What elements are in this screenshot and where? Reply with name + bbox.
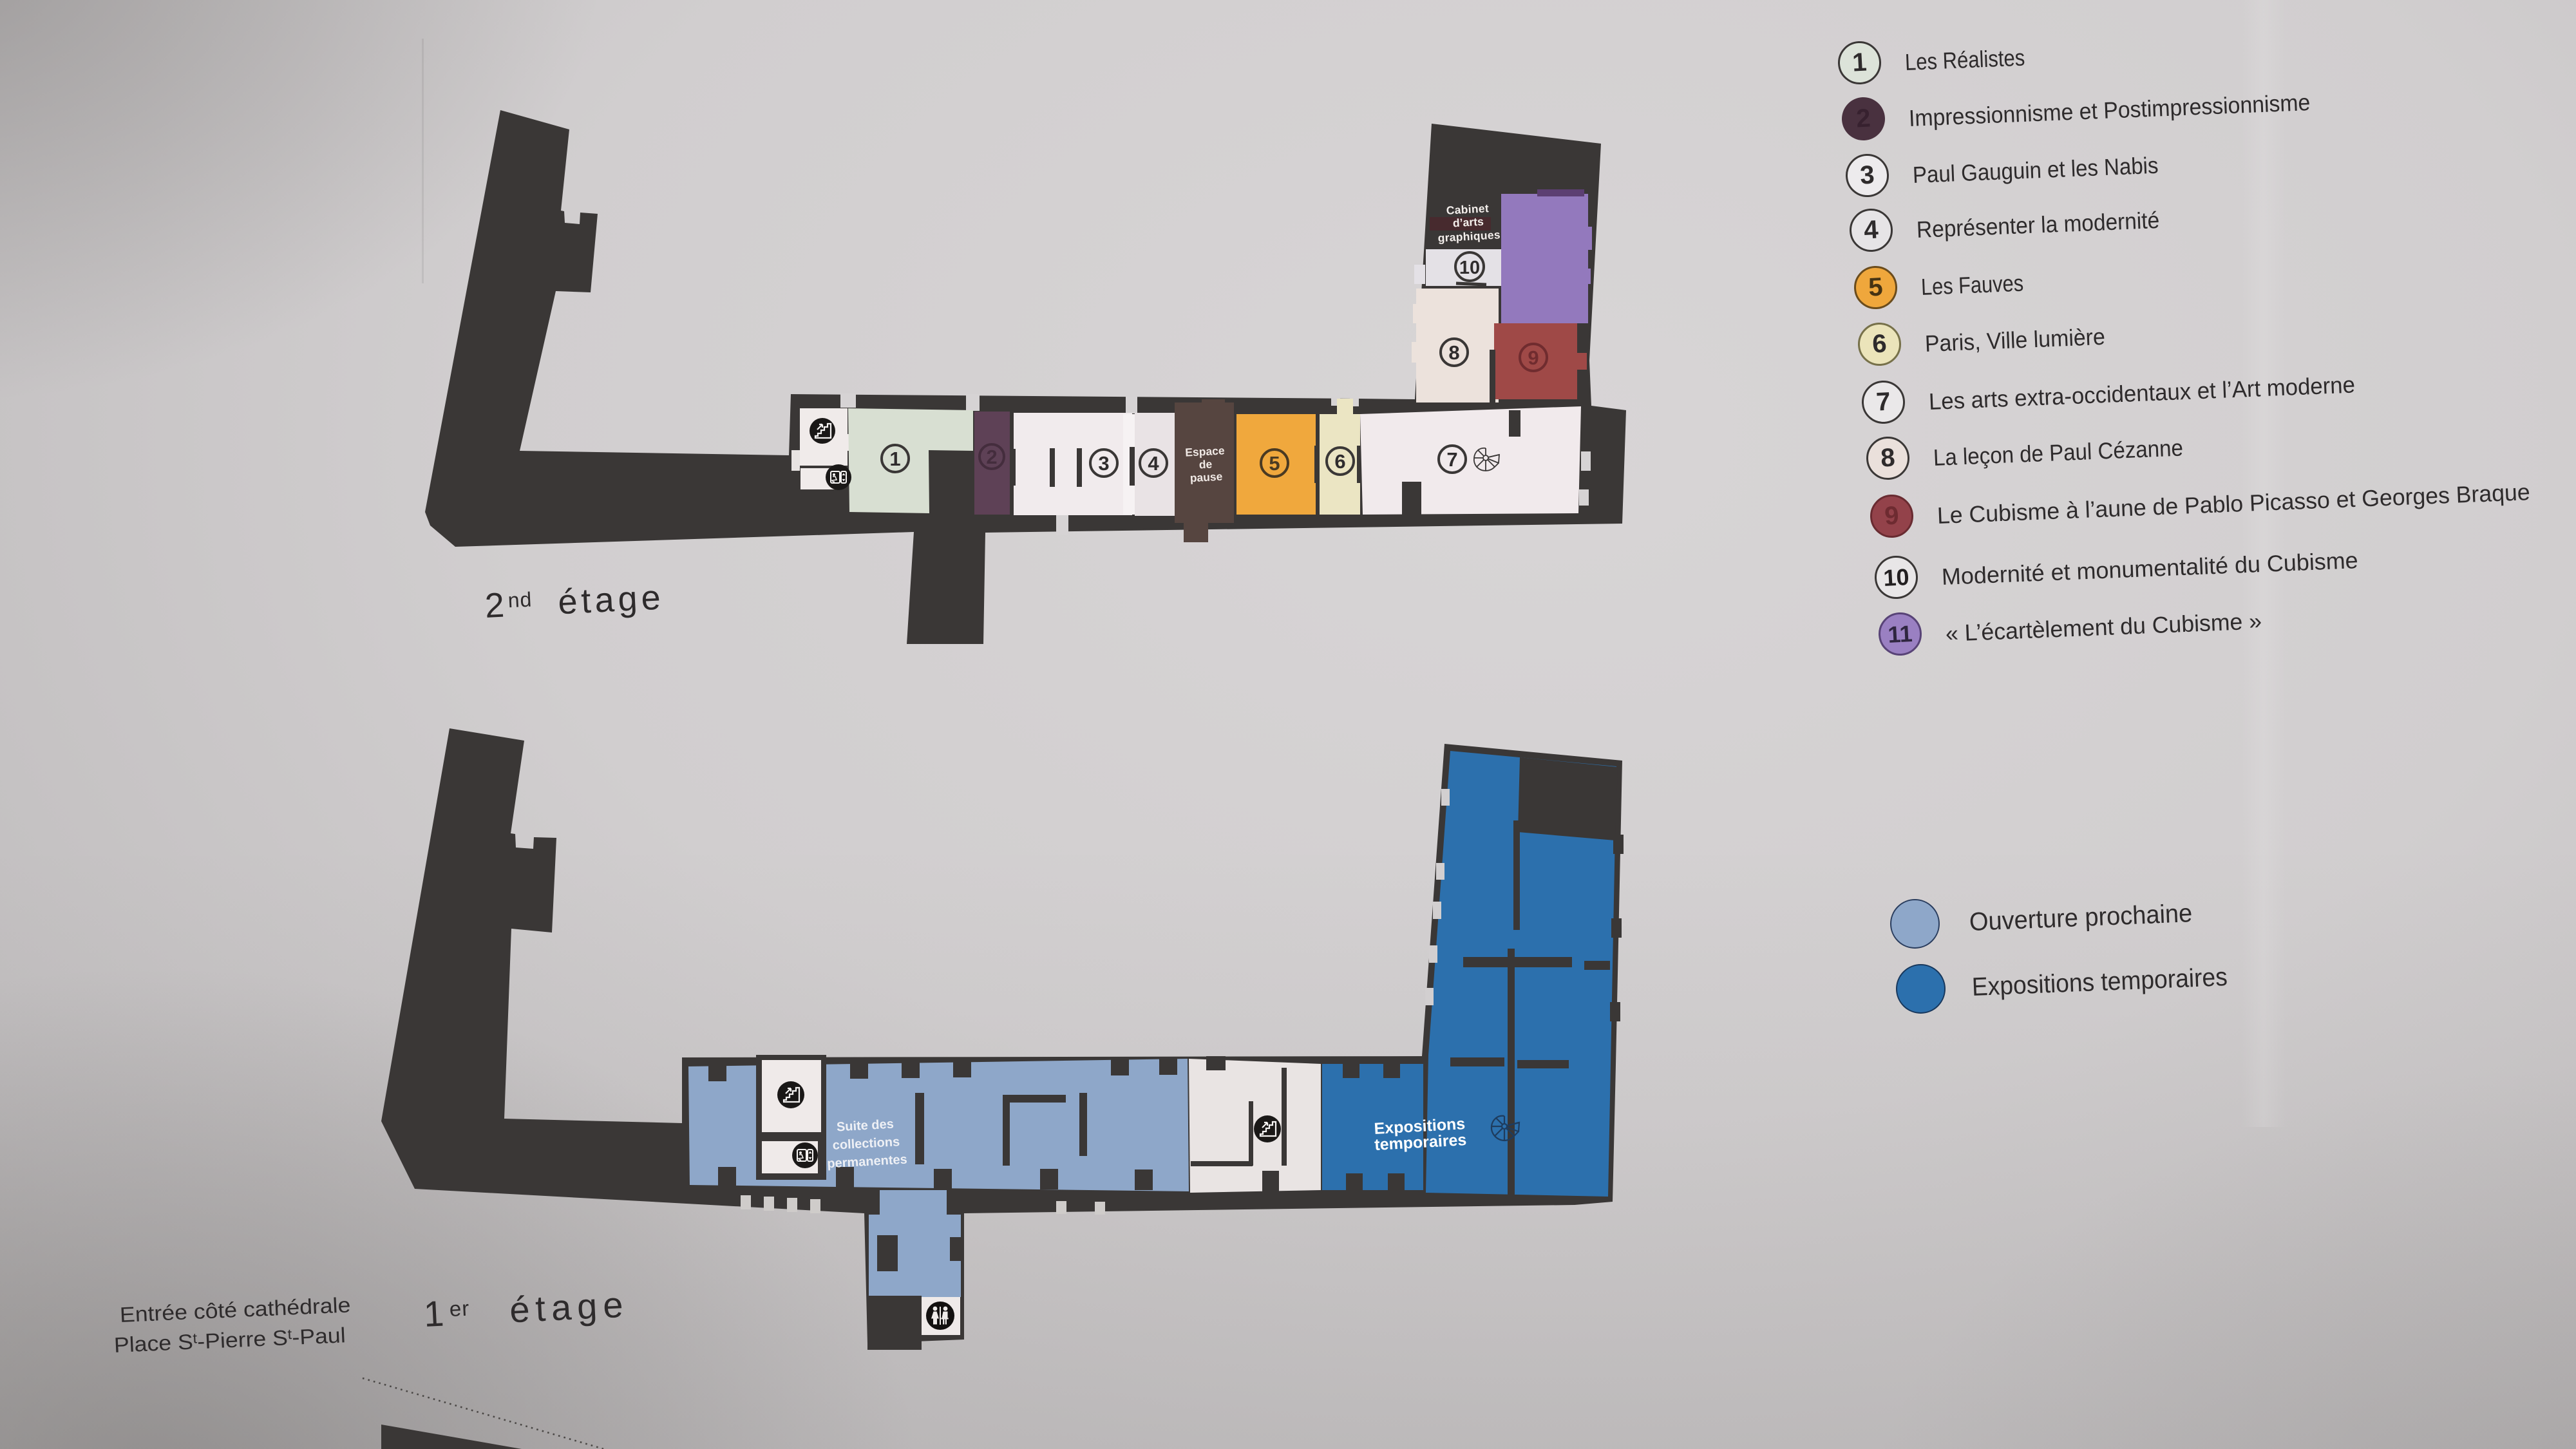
- svg-text:10: 10: [1459, 258, 1480, 278]
- svg-text:2: 2: [986, 446, 997, 468]
- svg-text:Espace: Espace: [1185, 444, 1226, 459]
- svg-text:de: de: [1198, 457, 1213, 471]
- svg-text:5: 5: [1269, 452, 1280, 475]
- svg-text:d’arts: d’arts: [1452, 215, 1484, 230]
- svg-text:pause: pause: [1189, 470, 1223, 485]
- svg-text:3: 3: [1098, 452, 1109, 475]
- svg-text:8: 8: [1448, 341, 1459, 364]
- svg-text:9: 9: [1528, 346, 1539, 369]
- svg-text:4: 4: [1148, 452, 1159, 475]
- svg-text:6: 6: [1334, 450, 1345, 473]
- svg-text:1: 1: [889, 448, 900, 470]
- svg-text:7: 7: [1446, 448, 1457, 471]
